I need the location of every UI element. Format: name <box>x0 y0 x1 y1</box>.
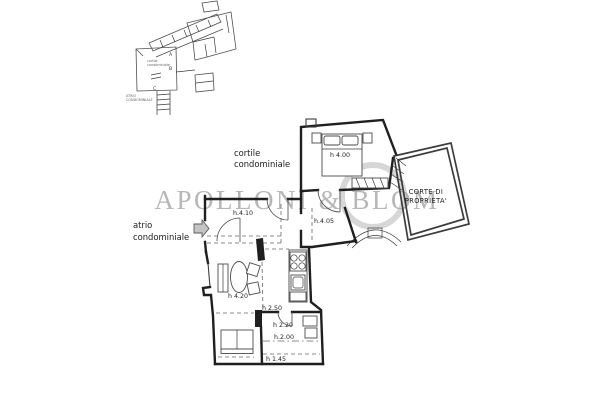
kitchen-cabinet <box>290 292 306 301</box>
height-label-145: h 1.45 <box>266 356 286 363</box>
floor-plan-page: APOLLONI & BLOM cortile condominiale ATR… <box>0 0 600 400</box>
kitchen-east-wall <box>309 248 323 364</box>
court-label-line1: CORTE DI <box>409 188 443 196</box>
entrance-door <box>217 218 240 242</box>
bed-pillow-right <box>342 136 358 145</box>
atrium-label-line2: condominiale <box>133 232 189 242</box>
court-label-line2: PROPRIETA' <box>405 197 447 205</box>
site-plan-east-partitions <box>193 15 229 57</box>
living-window <box>208 263 210 287</box>
chair-2 <box>247 282 260 295</box>
hall-height-label: h.4.10 <box>233 210 253 217</box>
site-plan-east-block <box>187 12 236 60</box>
pillar <box>256 238 265 261</box>
lowered-room-west-wall <box>261 327 262 364</box>
bedroom-height-label: h 4.00 <box>330 152 350 159</box>
site-marker-a: A <box>169 52 173 58</box>
atrium-label-line1: atrio <box>133 220 152 230</box>
height-label-250: h 2.50 <box>262 305 282 312</box>
site-plan-wing-hatch <box>160 20 211 47</box>
apartment-plan: h 4.00 CORTE DI PROPRIETA' h.4.10 <box>133 119 469 364</box>
courtyard-label-line1: cortile <box>234 148 260 158</box>
height-label-220: h 2.20 <box>273 322 293 329</box>
site-marker-c: C <box>153 86 156 92</box>
nightstand-right <box>363 133 372 143</box>
site-plan-annex-lines <box>176 70 213 83</box>
site-plan-wing-edge <box>156 29 223 57</box>
vestibule-height-label: h.4.05 <box>314 218 334 225</box>
nightstand-left <box>312 133 321 143</box>
courtyard-label-line2: condominiale <box>234 159 290 169</box>
height-label-200: h.2.00 <box>274 334 294 341</box>
vestibule-south-wall <box>301 231 356 247</box>
site-plan-top-block <box>202 1 219 12</box>
fixture-upper <box>303 316 317 326</box>
site-plan-corridor-steps <box>157 94 170 110</box>
lower-bed-foot <box>221 349 253 354</box>
stair-arc-inner <box>352 235 397 248</box>
entrance-arrow-icon <box>194 220 209 237</box>
lowered-room: h 2.50 h 2.20 h.2.00 h 1.45 <box>255 305 321 364</box>
wardrobe <box>352 178 388 188</box>
site-plan: cortile condominiale ATRIO CONDOMINIALE … <box>126 1 236 115</box>
floor-plan-canvas: APOLLONI & BLOM cortile condominiale ATR… <box>0 0 600 400</box>
dining-table <box>231 262 248 293</box>
chair-1 <box>246 263 260 277</box>
site-courtyard-label-line2: condominiale <box>147 63 170 67</box>
site-atrium-label-line2: CONDOMINIALE <box>126 98 153 102</box>
fixture-lower <box>305 328 317 338</box>
living-height-label: h 4.20 <box>228 293 248 300</box>
bed-pillow-left <box>324 136 340 145</box>
site-marker-b: B <box>169 66 172 72</box>
